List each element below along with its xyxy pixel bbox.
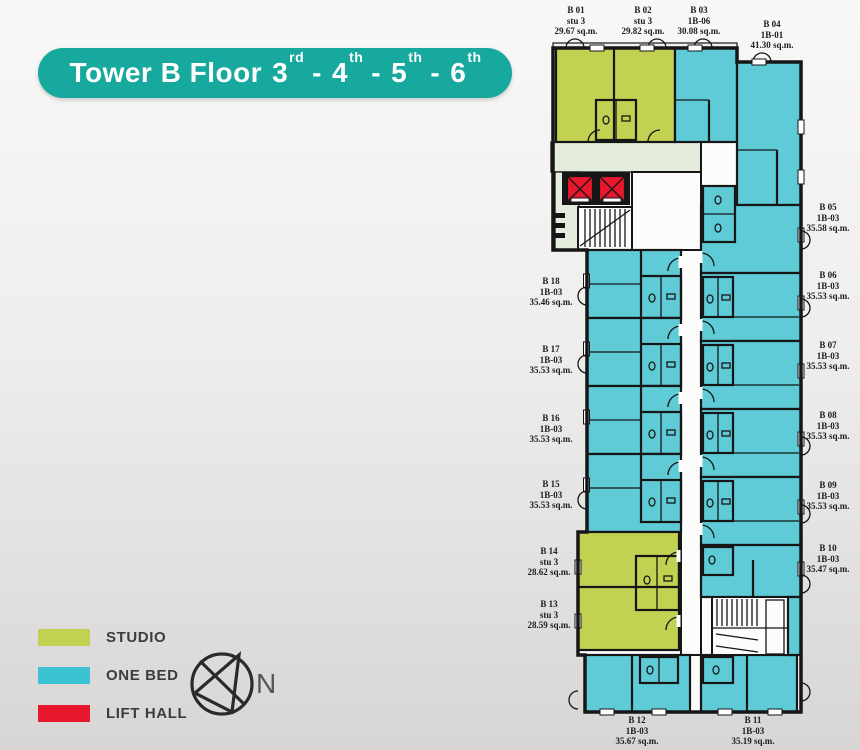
unit-b12 <box>585 655 690 712</box>
legend-item-lift-hall: LIFT HALL <box>38 704 187 722</box>
unit-label-b16: B 161B-0335.53 sq.m. <box>519 413 583 445</box>
unit-b08 <box>699 409 805 477</box>
lift-hall <box>562 172 630 205</box>
unit-b18 <box>584 250 683 318</box>
unit-label-b15: B 151B-0335.53 sq.m. <box>519 479 583 511</box>
unit-label-b12: B 121B-0335.67 sq.m. <box>605 715 669 747</box>
unit-b16 <box>584 386 683 454</box>
unit-label-b01: B 01stu 329.67 sq.m. <box>544 5 608 37</box>
corridor-sage <box>551 142 712 172</box>
unit-label-b10: B 101B-0335.47 sq.m. <box>796 543 860 575</box>
unit-label-b18: B 181B-0335.46 sq.m. <box>519 276 583 308</box>
unit-b11 <box>701 655 797 712</box>
unit-b04 <box>737 62 801 205</box>
unit-b15 <box>584 454 683 532</box>
stairs-bottom <box>712 597 801 655</box>
compass-icon <box>192 654 252 714</box>
unit-b10 <box>701 545 804 597</box>
unit-b17 <box>584 318 683 386</box>
unit-label-b07: B 071B-0335.53 sq.m. <box>796 340 860 372</box>
legend-label: ONE BED <box>106 667 179 684</box>
lift-hall-swatch <box>38 705 90 722</box>
unit-b01-b02-studio <box>556 48 675 142</box>
legend-item-studio: STUDIO <box>38 628 166 646</box>
unit-b09 <box>699 477 805 545</box>
unit-b03 <box>675 48 737 142</box>
unit-b06 <box>699 273 805 341</box>
title-prefix: Tower B Floor <box>69 57 262 89</box>
unit-label-b03: B 031B-0630.08 sq.m. <box>667 5 731 37</box>
page: { "title":{ "prefix":"Tower B Floor", "s… <box>0 0 860 750</box>
unit-label-b02: B 02stu 329.82 sq.m. <box>611 5 675 37</box>
unit-label-b04: B 041B-0141.30 sq.m. <box>740 19 804 51</box>
unit-b14-b13-studio <box>575 532 681 650</box>
page-title: Tower B Floor 3rd - 4th - 5th - 6th <box>38 48 512 98</box>
title-floor-5: 5th <box>391 57 421 89</box>
legend-label: STUDIO <box>106 629 166 646</box>
studio-swatch <box>38 629 90 646</box>
title-floor-4: 4th <box>332 57 362 89</box>
unit-label-b08: B 081B-0335.53 sq.m. <box>796 410 860 442</box>
unit-label-b05: B 051B-0335.58 sq.m. <box>796 202 860 234</box>
legend-item-one-bed: ONE BED <box>38 666 179 684</box>
legend-label: LIFT HALL <box>106 705 187 722</box>
title-floor-3: 3rd <box>272 57 303 89</box>
unit-label-b09: B 091B-0335.53 sq.m. <box>796 480 860 512</box>
unit-label-b06: B 061B-0335.53 sq.m. <box>796 270 860 302</box>
north-label: N <box>256 668 276 700</box>
unit-label-b14: B 14stu 328.62 sq.m. <box>517 546 581 578</box>
unit-b07 <box>699 341 805 409</box>
unit-label-b17: B 171B-0335.53 sq.m. <box>519 344 583 376</box>
unit-label-b13: B 13stu 328.59 sq.m. <box>517 599 581 631</box>
unit-label-b11: B 111B-0335.19 sq.m. <box>721 715 785 747</box>
title-floor-6: 6th <box>450 57 480 89</box>
corridor-central <box>681 250 701 655</box>
corridor-core <box>632 172 701 250</box>
one-bed-swatch <box>38 667 90 684</box>
